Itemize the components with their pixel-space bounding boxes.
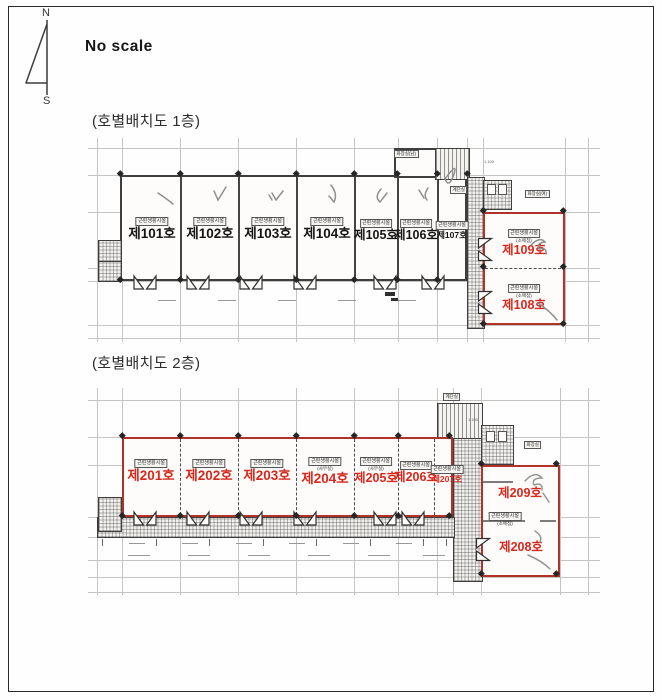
dimension-tick: [316, 539, 317, 546]
floor2-title: (호별배치도 2층): [92, 352, 200, 373]
unit-202: 근린생활시설 제202호: [185, 459, 232, 483]
unit-207: 근린생활시설 제207호: [431, 465, 464, 483]
unit-203: 근린생활시설 제203호: [243, 459, 290, 483]
facility-type-label: 근린생활시설: [400, 461, 433, 470]
facility-type-label: 근린생활시설: [489, 512, 522, 521]
unit-number: 제105호: [354, 229, 398, 242]
dimension-mark: [278, 300, 296, 301]
plan-glyph: [391, 298, 398, 301]
toilet-label: 화장실: [524, 441, 541, 449]
no-scale-label: No scale: [85, 38, 153, 56]
dimension-text: 1,100: [468, 417, 478, 422]
dimension-mark: [423, 555, 445, 556]
unit-number: 제207호: [432, 475, 462, 484]
facility-type-label: 근린생활시설: [309, 457, 342, 466]
scanned-floor-plan-page: N S No scale (호별배치도 1층) (호별배치도 2층) 화장실(남…: [0, 0, 662, 700]
unit-number: 제208호: [499, 541, 543, 554]
door-symbol-icon: [471, 537, 492, 563]
unit-number: 제102호: [186, 227, 233, 241]
dashed-partition: [485, 268, 561, 269]
toilet-female-label: 화장실(여): [525, 190, 550, 198]
compass-south-label: S: [43, 95, 50, 107]
unit-101: 근린생활시설 제101호: [128, 217, 175, 241]
unit-wall-dashed: [180, 439, 181, 515]
door-symbol-icon: [185, 510, 211, 531]
unit-wall-dashed: [238, 439, 239, 515]
grid-line: [560, 388, 561, 595]
grid-line: [88, 338, 600, 339]
unit-108: 근린생활시설 (소매점) 제108호: [502, 284, 546, 312]
door-symbol-icon: [372, 274, 398, 295]
unit-106: 근린생활시설 제106호: [394, 219, 438, 242]
unit-number: 제203호: [243, 469, 290, 483]
dimension-mark: [343, 543, 359, 544]
door-symbol-icon: [372, 510, 398, 531]
facility-type-label: 근린생활시설: [194, 217, 227, 226]
door-symbol-icon: [238, 510, 264, 531]
facility-type-label: 근린생활시설: [252, 217, 285, 226]
unit-number: 제202호: [185, 469, 232, 483]
facility-type-label: 근린생활시설: [508, 229, 541, 238]
unit-number: 제201호: [127, 469, 174, 483]
unit-208: 제208호: [499, 541, 543, 554]
grid-line: [88, 325, 600, 326]
unit-number: 제209호: [498, 487, 542, 500]
floor1-title: (호별배치도 1층): [92, 110, 200, 131]
unit-104: 근린생활시설 제104호: [303, 217, 350, 241]
unit-number: 제108호: [502, 299, 546, 312]
grid-line: [88, 400, 600, 401]
dimension-tick: [156, 539, 157, 546]
unit-wall-dashed: [296, 439, 297, 515]
door-symbol-icon: [473, 237, 494, 263]
facility-type-label: 근린생활시설: [400, 219, 433, 228]
door-symbol-icon: [420, 274, 446, 295]
dimension-tick: [102, 539, 103, 546]
dimension-mark: [129, 543, 145, 544]
unit-number: 제107호: [437, 231, 467, 240]
facility-sub-label: (소매점): [497, 522, 512, 527]
unit-number: 제106호: [394, 229, 438, 242]
dimension-tick: [263, 539, 264, 546]
stair-block: [435, 148, 470, 180]
facility-type-label: 근린생활시설: [436, 221, 469, 230]
dimension-mark: [396, 543, 412, 544]
unit-number: 제205호: [354, 472, 398, 485]
unit-102: 근린생활시설 제102호: [186, 217, 233, 241]
unit-204: 근린생활시설 (사무실) 제204호: [301, 457, 348, 486]
grid-line: [565, 138, 566, 342]
unit-109: 근린생활시설 (소매점) 제109호: [502, 229, 546, 257]
door-symbol-icon: [132, 274, 158, 295]
unit-209: 제209호: [498, 487, 542, 500]
dimension-mark: [338, 300, 356, 301]
unit-number: 제204호: [301, 472, 348, 486]
grid-line: [88, 577, 600, 578]
toilet-block: [481, 425, 514, 465]
interior-wall: [483, 481, 513, 483]
dimension-mark: [236, 543, 252, 544]
compass-north-label: N: [42, 7, 50, 19]
facility-type-label: 근린생활시설: [251, 459, 284, 468]
door-symbol-icon: [400, 510, 426, 531]
compass-icon: [20, 19, 76, 97]
unit-103: 근린생활시설 제103호: [244, 217, 291, 241]
toilet-male-label: 화장실(남): [394, 150, 419, 158]
dimension-text: 1,100: [484, 159, 494, 164]
door-symbol-icon: [473, 290, 494, 316]
unit-201: 근린생활시설 제201호: [127, 459, 174, 483]
grid-line: [88, 592, 600, 593]
stair-label: 계단실: [450, 186, 467, 194]
exterior-stair-block: [98, 240, 122, 262]
dimension-mark: [368, 555, 390, 556]
facility-type-label: 근린생활시설: [360, 219, 393, 228]
unit-208-facility: 근린생활시설 (소매점): [489, 512, 522, 526]
door-symbol-icon: [132, 510, 158, 531]
facility-type-label: 근린생활시설: [311, 217, 344, 226]
dimension-mark: [248, 555, 270, 556]
dimension-tick: [370, 539, 371, 546]
dimension-tick: [209, 539, 210, 546]
door-symbol-icon: [185, 274, 211, 295]
floor-plan-1: 화장실(남) 계단실 화장실(여) 1,100 근린생활시설 제101호 근린생…: [88, 135, 600, 347]
dimension-tick: [423, 539, 424, 546]
unit-number: 제104호: [303, 227, 350, 241]
dimension-mark: [158, 300, 176, 301]
facility-type-label: 근린생활시설: [360, 457, 393, 466]
stair-label: 계단실: [443, 393, 460, 401]
door-symbol-icon: [238, 274, 264, 295]
facility-type-label: 근린생활시설: [193, 459, 226, 468]
unit-number: 제103호: [244, 227, 291, 241]
dimension-mark: [182, 543, 198, 544]
unit-105: 근린생활시설 제105호: [354, 219, 398, 242]
unit-wall: [296, 175, 298, 281]
facility-type-label: 근린생활시설: [135, 459, 168, 468]
dimension-mark: [398, 300, 416, 301]
grid-line: [588, 388, 589, 595]
grid-line: [588, 138, 589, 342]
floor-plan-2: 계단실 화장실 1,100 근린생활시설 제201호 근린생활시설 제202호: [88, 385, 600, 600]
dimension-tick: [446, 539, 447, 546]
facility-type-label: 근린생활시설: [508, 284, 541, 293]
dimension-mark: [128, 555, 150, 556]
facility-type-label: 근린생활시설: [431, 465, 464, 474]
dimension-mark: [289, 543, 305, 544]
unit-number: 제101호: [128, 227, 175, 241]
interior-wall: [540, 520, 556, 522]
dimension-mark: [218, 300, 236, 301]
unit-wall: [180, 175, 182, 281]
unit-205: 근린생활시설 (사무실) 제205호: [354, 457, 398, 485]
grid-line: [97, 388, 98, 595]
unit-number: 제109호: [502, 244, 546, 257]
facility-type-label: 근린생활시설: [136, 217, 169, 226]
dimension-mark: [308, 555, 330, 556]
toilet-block: [483, 180, 512, 210]
unit-107: 근린생활시설 제107호: [436, 221, 469, 239]
dimension-mark: [188, 555, 210, 556]
unit-wall: [238, 175, 240, 281]
grid-line: [88, 148, 600, 149]
